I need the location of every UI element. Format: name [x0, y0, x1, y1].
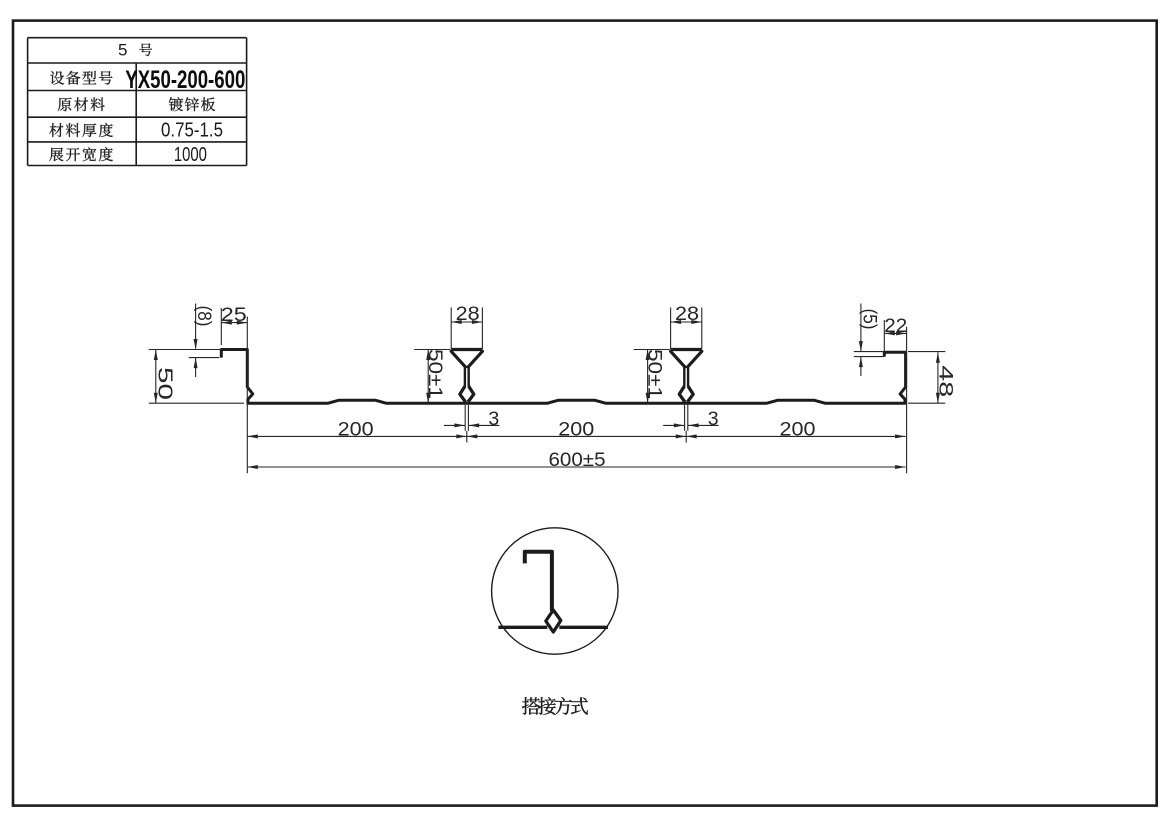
svg-text:48: 48 — [935, 365, 957, 397]
svg-text:50: 50 — [154, 367, 176, 400]
svg-text:600±5: 600±5 — [549, 450, 606, 471]
svg-text:200: 200 — [338, 419, 374, 441]
svg-text:3: 3 — [488, 408, 499, 430]
svg-text:0.75-1.5: 0.75-1.5 — [161, 119, 223, 141]
svg-text:3: 3 — [708, 408, 719, 430]
svg-text:50±1: 50±1 — [424, 349, 445, 399]
svg-text:200: 200 — [780, 419, 816, 441]
svg-text:YX50-200-600: YX50-200-600 — [125, 66, 245, 94]
svg-text:1000: 1000 — [174, 144, 207, 166]
svg-text:25: 25 — [221, 304, 247, 326]
svg-text:22: 22 — [884, 315, 907, 337]
svg-text:(8): (8) — [193, 306, 214, 327]
svg-text:200: 200 — [558, 419, 594, 441]
svg-text:(5): (5) — [858, 309, 879, 330]
svg-text:5: 5 — [118, 41, 127, 60]
svg-text:28: 28 — [456, 303, 480, 325]
svg-text:50±1: 50±1 — [644, 349, 665, 399]
svg-text:28: 28 — [675, 303, 699, 325]
